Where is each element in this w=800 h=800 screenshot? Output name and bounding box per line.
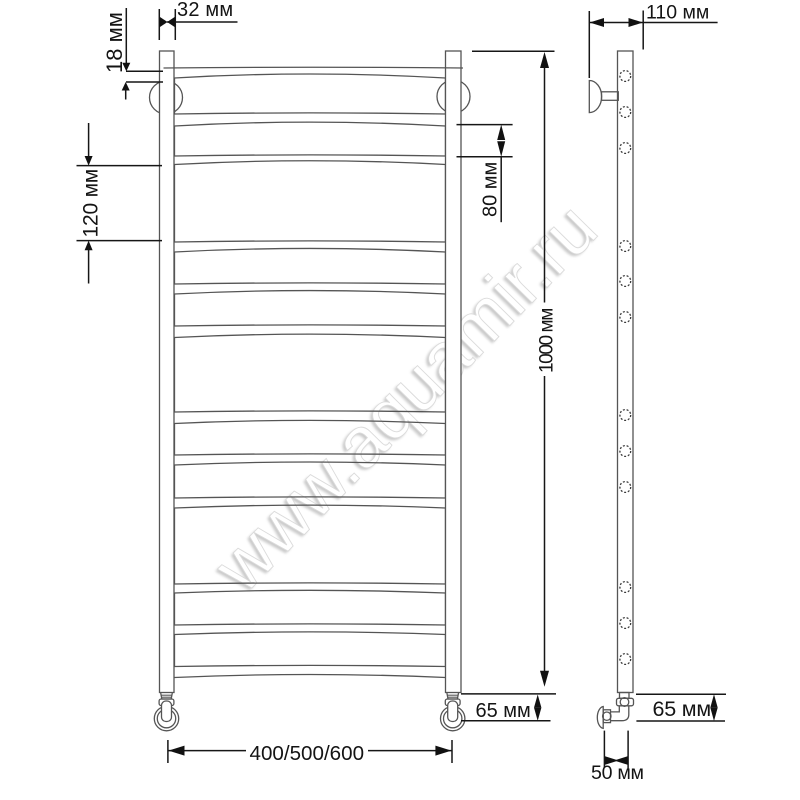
svg-text:1000 мм: 1000 мм: [537, 309, 558, 373]
svg-text:50 мм: 50 мм: [591, 762, 644, 784]
svg-text:400/500/600: 400/500/600: [250, 742, 365, 765]
svg-text:18 мм: 18 мм: [102, 12, 127, 73]
svg-text:80 мм: 80 мм: [480, 162, 502, 217]
svg-text:65 мм: 65 мм: [476, 700, 531, 722]
svg-text:110 мм: 110 мм: [646, 2, 709, 24]
svg-text:32 мм: 32 мм: [177, 0, 233, 21]
svg-text:120 мм: 120 мм: [80, 169, 103, 238]
svg-text:65 мм: 65 мм: [653, 697, 711, 721]
